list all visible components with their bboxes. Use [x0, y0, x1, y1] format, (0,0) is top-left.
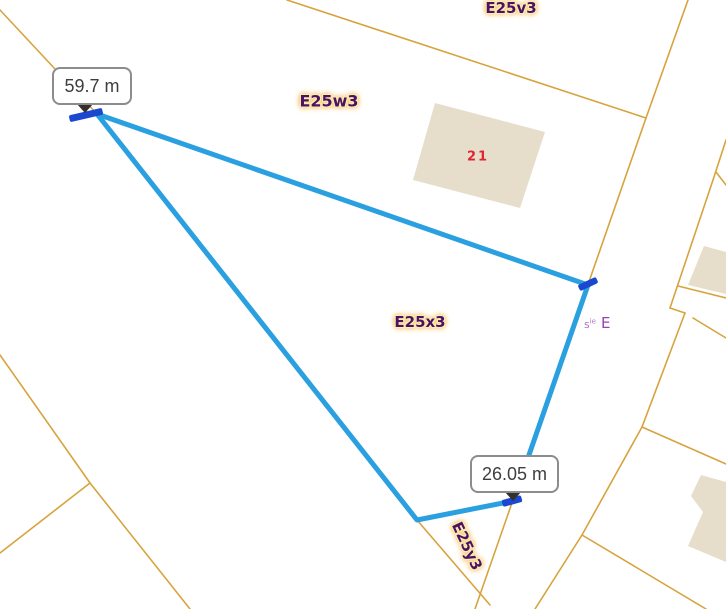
parcel-boundary-line — [582, 535, 706, 609]
measurement-value: 26.05 m — [482, 464, 547, 485]
parcel-boundary-line — [0, 355, 90, 483]
building-number-label: 21 — [467, 150, 489, 165]
building-polygon-top-right — [688, 246, 726, 294]
parcel-label-e25v3: E25v3 — [485, 0, 536, 17]
section-label-letter: E — [601, 314, 610, 332]
parcel-boundary-line — [90, 483, 190, 609]
parcel-boundary-line — [642, 313, 685, 427]
measurement-value: 59.7 m — [64, 76, 119, 97]
parcel-label-e25x3: E25x3 — [394, 313, 445, 331]
building-polygon-bottom-right — [688, 475, 726, 562]
parcel-boundary-line — [670, 308, 685, 313]
section-label-superscript: ie — [590, 317, 596, 325]
parcel-boundary-line — [693, 318, 726, 338]
measurement-tooltip-2: 26.05 m — [470, 455, 559, 493]
parcel-boundary-line — [646, 0, 688, 118]
parcel-boundary-line — [582, 427, 642, 535]
tooltip-arrow — [505, 492, 521, 501]
parcel-boundary-line — [0, 483, 90, 553]
section-label: sieE — [584, 314, 610, 332]
parcel-label-e25w3: E25w3 — [299, 92, 358, 111]
tooltip-arrow — [77, 104, 93, 113]
measurement-tooltip-1: 59.7 m — [52, 67, 132, 105]
map-canvas[interactable]: E25v3 E25w3 E25x3 E25y3 21 sieE 59.7 m 2… — [0, 0, 726, 609]
parcel-boundary-line — [716, 172, 726, 185]
parcel-boundary-line — [642, 427, 726, 464]
parcel-boundary-line — [535, 535, 582, 609]
